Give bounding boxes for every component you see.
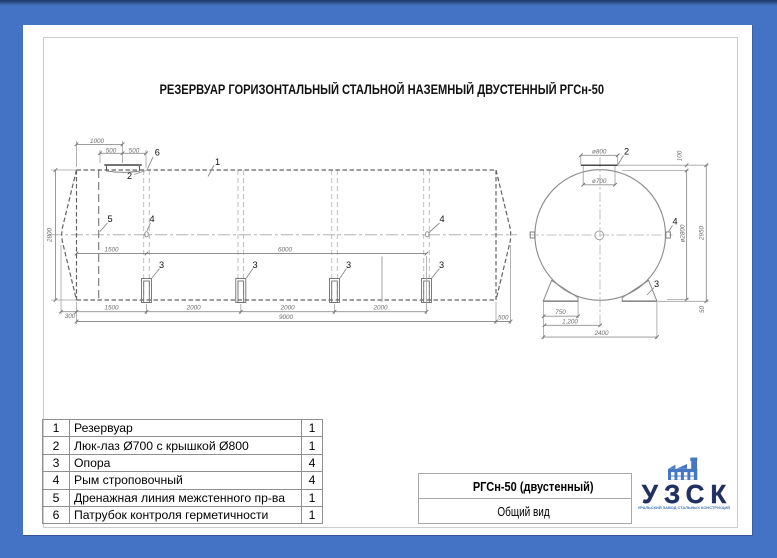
svg-text:4: 4: [672, 217, 677, 227]
svg-text:ø2800: ø2800: [680, 224, 687, 242]
svg-text:2: 2: [127, 171, 132, 181]
svg-text:500: 500: [498, 315, 509, 322]
svg-text:3: 3: [346, 260, 351, 270]
svg-text:500: 500: [129, 147, 140, 154]
svg-text:1500: 1500: [104, 305, 119, 312]
svg-text:ø700: ø700: [592, 178, 607, 185]
svg-text:1: 1: [215, 157, 220, 167]
svg-text:3: 3: [252, 260, 257, 270]
svg-text:1,200: 1,200: [562, 318, 578, 325]
svg-text:1500: 1500: [104, 246, 119, 253]
svg-text:6: 6: [155, 148, 160, 158]
svg-text:2000: 2000: [372, 305, 388, 312]
svg-text:1000: 1000: [90, 138, 105, 145]
svg-text:3: 3: [159, 260, 164, 270]
svg-text:6000: 6000: [278, 246, 293, 253]
svg-text:2000: 2000: [186, 305, 202, 312]
svg-text:2400: 2400: [593, 330, 609, 337]
svg-text:750: 750: [555, 309, 566, 316]
svg-text:2000: 2000: [280, 305, 296, 312]
svg-text:3: 3: [654, 279, 659, 289]
svg-text:300: 300: [65, 313, 76, 320]
svg-text:4: 4: [149, 214, 154, 224]
svg-text:4: 4: [439, 214, 444, 224]
svg-text:500: 500: [106, 147, 117, 154]
svg-text:100: 100: [677, 150, 684, 161]
svg-text:2800: 2800: [47, 228, 54, 244]
svg-text:3: 3: [439, 260, 444, 270]
svg-text:2950: 2950: [698, 226, 705, 242]
svg-text:50: 50: [699, 306, 706, 314]
svg-text:5: 5: [107, 214, 112, 224]
svg-text:ø800: ø800: [592, 148, 607, 155]
svg-text:9000: 9000: [279, 314, 294, 321]
svg-text:2: 2: [624, 147, 629, 157]
